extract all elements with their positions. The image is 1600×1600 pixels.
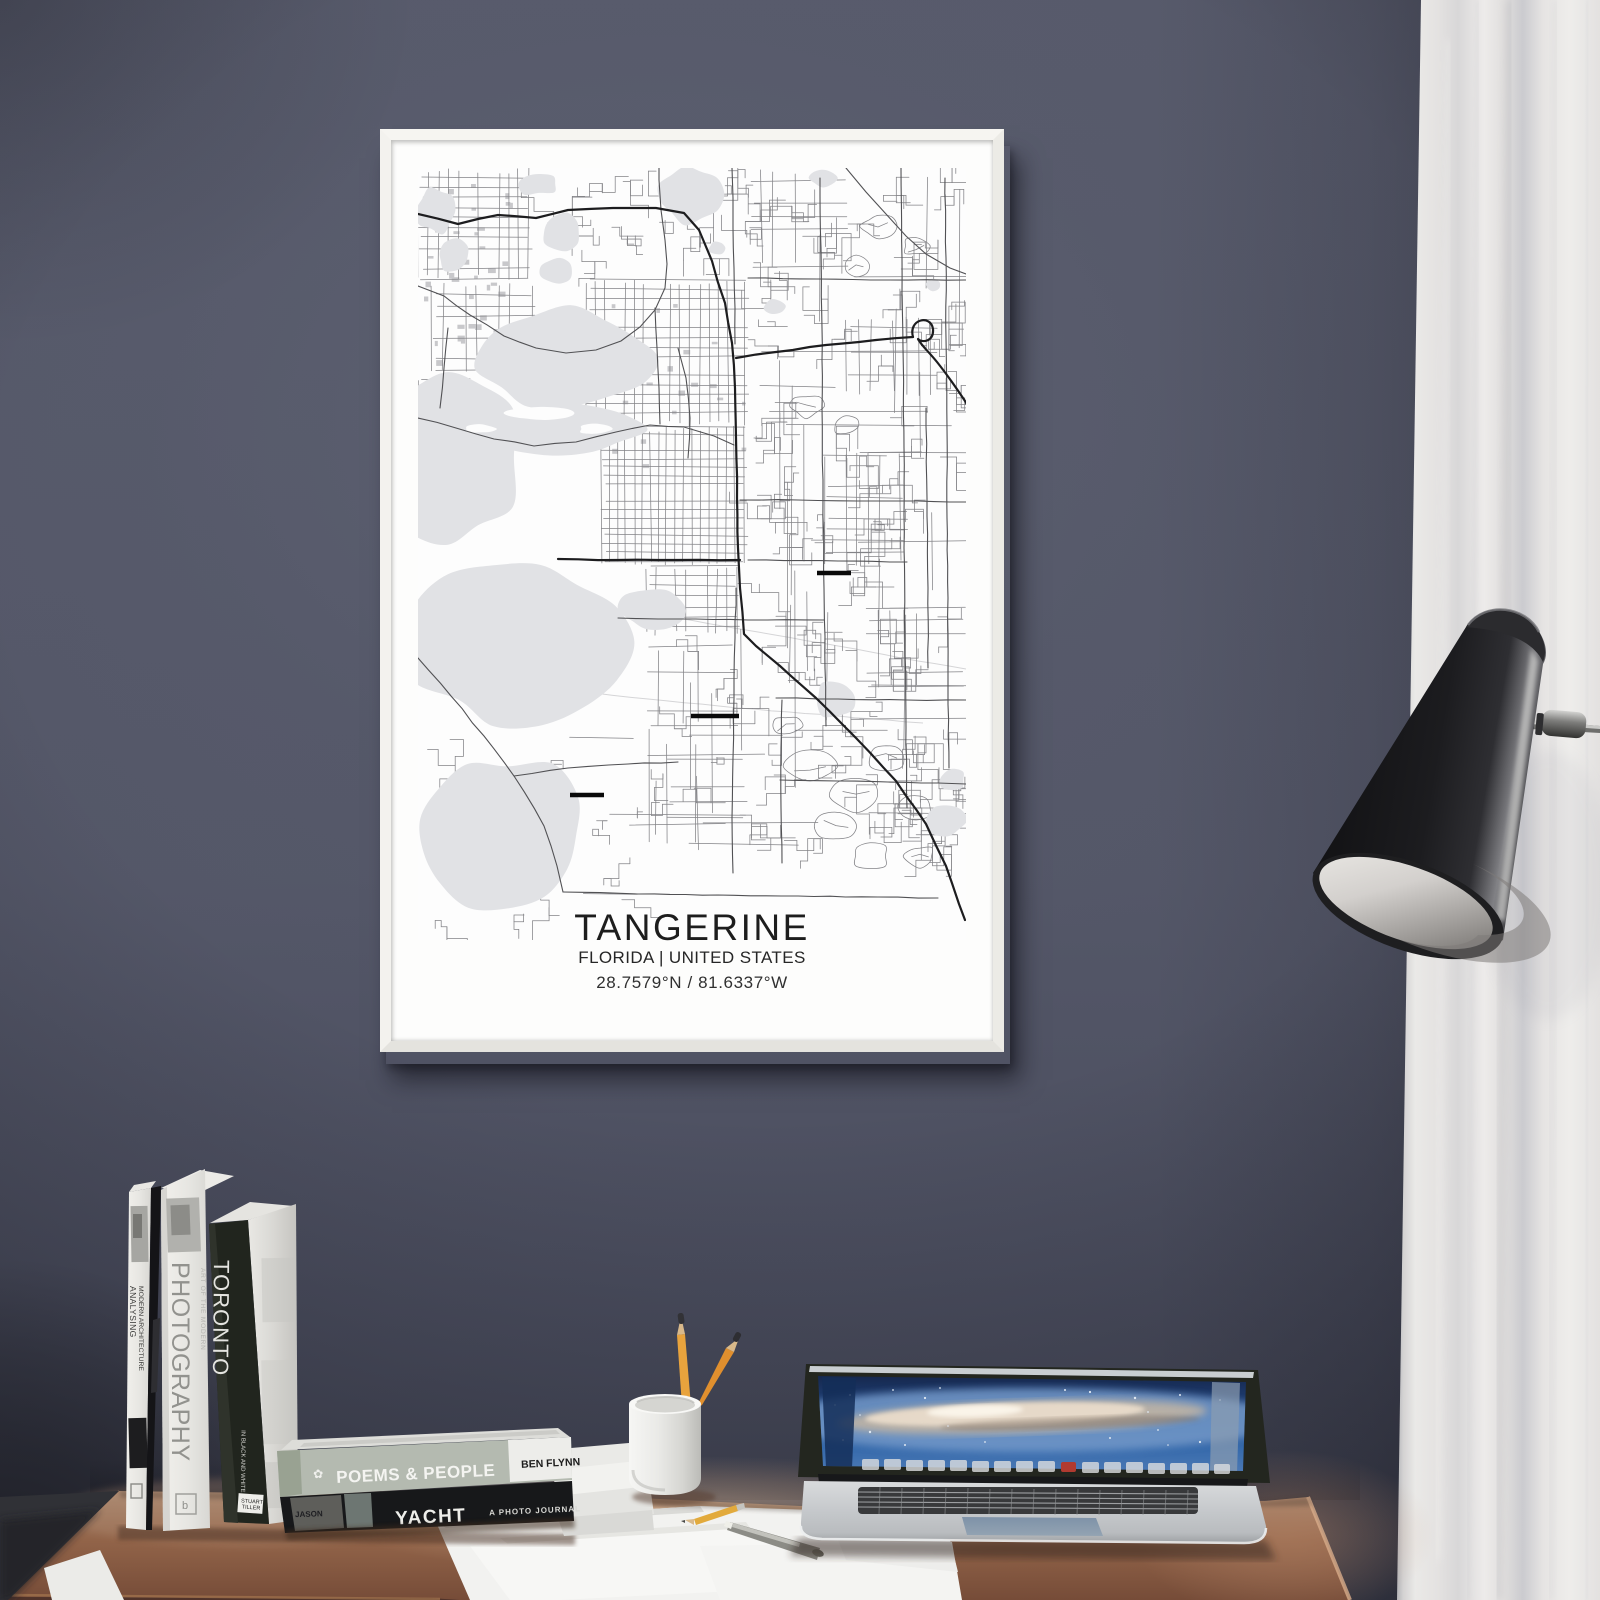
svg-text:ART OF THE MODERN: ART OF THE MODERN	[199, 1268, 206, 1351]
svg-text:PHOTOGRAPHY: PHOTOGRAPHY	[166, 1262, 194, 1462]
svg-text:ANALYSING: ANALYSING	[128, 1286, 138, 1338]
svg-text:IN BLACK AND WHITE: IN BLACK AND WHITE	[239, 1430, 246, 1492]
svg-text:b: b	[182, 1500, 188, 1512]
svg-text:JASON: JASON	[295, 1509, 323, 1519]
svg-text:TORONTO: TORONTO	[208, 1260, 234, 1376]
svg-text:✿: ✿	[313, 1467, 324, 1481]
svg-text:MODERN ARCHITECTURE: MODERN ARCHITECTURE	[137, 1286, 144, 1371]
